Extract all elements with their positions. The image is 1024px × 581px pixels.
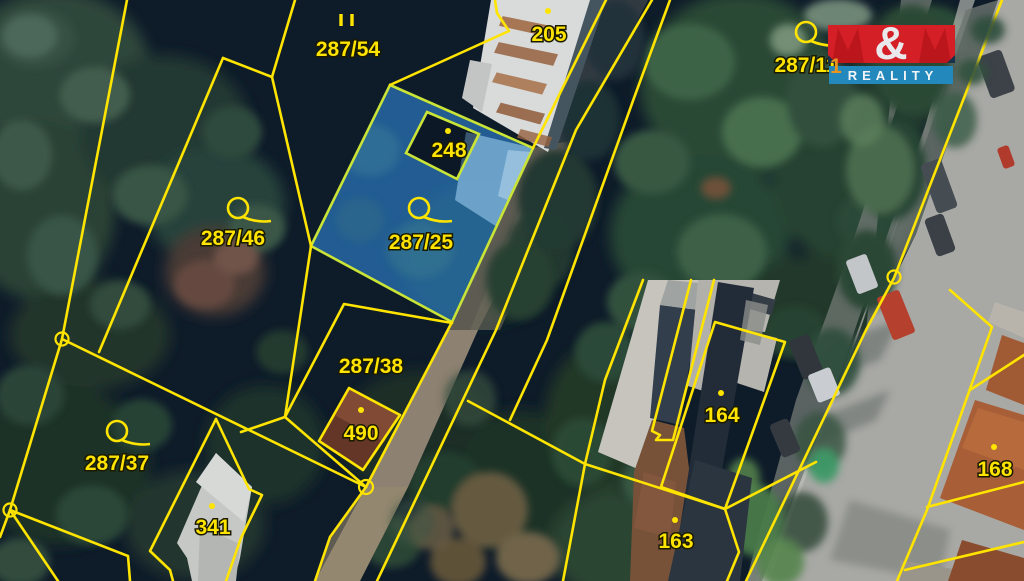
svg-text:287/37: 287/37 — [85, 452, 149, 475]
svg-text:205: 205 — [531, 23, 566, 46]
svg-text:341: 341 — [195, 516, 230, 539]
svg-text:287/38: 287/38 — [339, 355, 404, 378]
svg-text:&: & — [874, 17, 907, 69]
svg-text:248: 248 — [431, 139, 466, 162]
svg-text:REALITY: REALITY — [848, 68, 939, 83]
svg-text:287/25: 287/25 — [389, 231, 454, 254]
svg-text:163: 163 — [658, 530, 693, 553]
svg-text:490: 490 — [343, 422, 378, 445]
svg-text:168: 168 — [977, 458, 1012, 481]
svg-text:287/54: 287/54 — [316, 38, 381, 61]
svg-text:287/46: 287/46 — [201, 227, 265, 250]
svg-text:164: 164 — [704, 404, 739, 427]
svg-text:1: 1 — [830, 55, 842, 78]
